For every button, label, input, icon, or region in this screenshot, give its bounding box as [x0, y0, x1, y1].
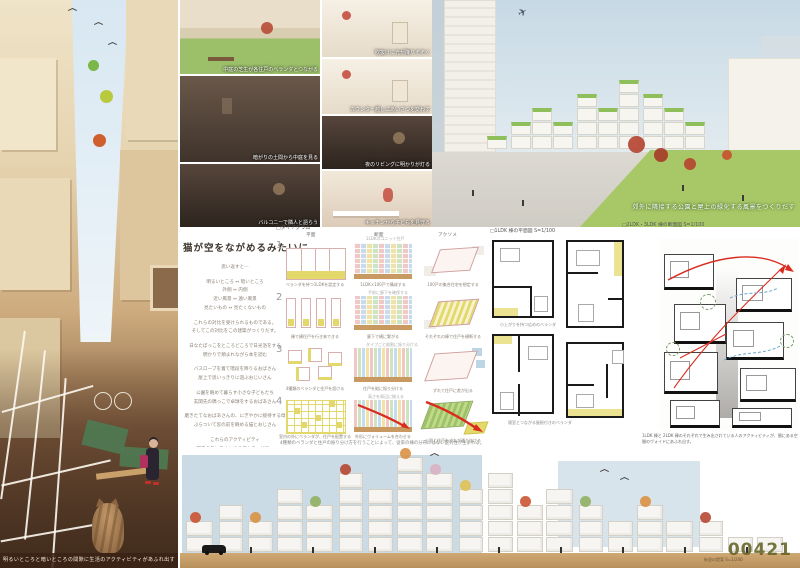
statement-line: 磨きたてなおばあさんの、にぎやかに接待する母 [183, 413, 287, 422]
hero-housing-box [553, 136, 573, 149]
elevation-box [397, 521, 423, 536]
hero-housing-box [643, 108, 663, 121]
elevation-box [277, 521, 303, 536]
elevation-box [459, 521, 483, 536]
photo-caption: 暗がりの土間から中庭を見る [253, 154, 318, 161]
bird-icon [108, 42, 117, 46]
yellow-balloon [100, 90, 113, 103]
pedestrian [472, 190, 474, 196]
statement-line: 明かりで頬まれながら本を読む [183, 352, 287, 361]
sight-arrow [354, 400, 412, 432]
diagram-caption: 廊下で横に繋がる [348, 334, 418, 340]
diagram-caption: 棟で横住戸を行き来できる [280, 334, 350, 340]
photo-caption: 夜のリビングに明かりが灯る [365, 161, 430, 168]
autumn-tree [722, 150, 732, 160]
hero-housing-box [664, 108, 684, 121]
floor-plan [566, 342, 624, 418]
photo-caption: 中庭の芝生が各住戸のベランダとつながる [223, 66, 318, 73]
hero-housing-box [664, 136, 684, 149]
elevation-box [339, 521, 363, 536]
diagram-caption: ずれて住戸に差が出る [418, 388, 488, 394]
elevation-box [517, 505, 543, 520]
window-opening [150, 265, 178, 311]
plan-annotation: 小上がりを持つ広めのベランダ [500, 322, 556, 328]
diagram-caption: 1LDK×100戸で構成する [348, 282, 418, 288]
diagram-header: □ダイアグラム [276, 224, 310, 231]
elevation-box [339, 505, 363, 520]
hero-aerial-render: ✈ 郊外に隣接する公園と屋上の緑化する風景をつくりだす [432, 0, 800, 227]
row-number: 1 [276, 240, 282, 251]
facade-block [126, 0, 178, 140]
pedestrian [742, 195, 744, 201]
statement-line: これらの対比を受けられるものである。 [183, 320, 287, 329]
elevation-box [459, 505, 483, 520]
statement-line: バスローブを着て階段を降りるおばさん [183, 366, 287, 375]
elevation-tree [430, 464, 441, 475]
bird-icon [68, 8, 77, 12]
white-building [728, 58, 800, 154]
elevation-box [426, 473, 453, 488]
elevation-box [637, 505, 663, 520]
elevation-box [637, 521, 663, 536]
airplane-icon: ✈ [515, 5, 529, 21]
bicycle-wheel [94, 392, 112, 410]
elevation-box [488, 505, 513, 520]
statement-line: 公園を眺めて暮らす小さな子どもたち [183, 390, 287, 399]
hero-housing-box [619, 122, 639, 135]
elevation-box [488, 537, 513, 552]
elevation-box [546, 489, 573, 504]
diagram-plan-1 [286, 248, 346, 280]
elevation-box [579, 521, 603, 536]
diagram-caption: 4種類のベランダと住戸を設ける [280, 386, 350, 392]
diagram-caption: ベランダを持つ1LDKを設定する [280, 282, 350, 288]
render-kitchen: キッチンから子どもを見守る [322, 171, 432, 227]
elevation-box [397, 537, 423, 552]
left-panel-caption: 明るいところと暗いところの間隙に生活のアクティビティがあふれ出す [0, 553, 178, 568]
diagram-axon-4 [422, 396, 486, 436]
render-counter: カウンター越しにあいさつを交わす [322, 59, 432, 114]
elevation-box [339, 473, 363, 488]
diagram-axon-1 [422, 240, 486, 280]
diagram-plan-2 [286, 298, 344, 330]
photo-caption: カウンター越しにあいさつを交わす [350, 106, 430, 113]
floor-plan [492, 240, 554, 318]
facade-block [0, 178, 70, 290]
elevation-box [459, 489, 483, 504]
facade-block [0, 58, 56, 150]
statement-line: 屋上で思いっきりに遊ぶおじいさん [183, 375, 287, 384]
elevation-box [397, 505, 423, 520]
diagram-section-1 [354, 243, 412, 279]
diagram-note: 1LDKのユニット住戸 [366, 236, 404, 242]
pedestrian [682, 185, 684, 191]
bird-icon [94, 22, 103, 26]
hero-housing-box [577, 136, 597, 149]
column-label-axon: アクソメ [438, 231, 457, 238]
hero-housing-box [619, 108, 639, 121]
hero-housing-box [664, 122, 684, 135]
hero-housing-box [643, 94, 663, 107]
elevation-box [546, 521, 573, 536]
render-interior-bright: 吹抜けに光が降りそそぐ [322, 0, 432, 57]
elevation-box [666, 537, 693, 552]
elevation-box [426, 505, 453, 520]
hero-housing-box [511, 122, 531, 135]
left-collage-panel: 明るいところと暗いところの間隙に生活のアクティビティがあふれ出す [0, 0, 178, 568]
diagram-caption: それぞれの棟で住戸を横断する [418, 334, 488, 340]
diagram-plan-4 [286, 400, 346, 434]
diagram-column: □ダイアグラム 平面 断面 アクソメ 1 ベランダを持つ1LDKを設定する 1L… [276, 224, 488, 448]
column-label-plan: 平面 [306, 231, 316, 238]
statement-line: 日なたぼっこをところどころで日光浴をする [183, 343, 287, 352]
elevation-skyline [180, 447, 800, 568]
elevation-box [397, 457, 423, 472]
elevation-box [666, 521, 693, 536]
diagram-caption: 住戸を縦に振り分ける [348, 386, 418, 392]
diagram-section-4 [354, 400, 412, 432]
statement-line: 思い返すと⋯ [183, 264, 287, 273]
elevation-box [368, 537, 393, 552]
elevation-box [277, 537, 303, 552]
section-caption: 1LDK 棟と 2LDK 棟のそれぞれで生み出されている人のアクティビティが、間… [642, 433, 798, 445]
autumn-tree [684, 158, 696, 170]
autumn-tree [628, 136, 645, 153]
row-number: 4 [276, 396, 282, 407]
elevation-box [517, 537, 543, 552]
hero-cluster [487, 40, 713, 152]
elevation-box [608, 521, 633, 536]
elevation-box [426, 521, 453, 536]
diagram-section-2 [354, 296, 412, 330]
elevation-box [699, 537, 723, 552]
elevation-tree [460, 480, 471, 491]
red-shoe [153, 482, 159, 485]
elevation-box [699, 521, 723, 536]
bicycle-wheel [114, 392, 132, 410]
elevation-box [368, 489, 393, 504]
pedestrian [522, 200, 524, 206]
elevation-box [219, 505, 243, 520]
statement-line: 見たいもの ↔ 見たくないもの [183, 305, 287, 314]
hero-housing-box [598, 108, 618, 121]
statement-line: 玄関先の隅っこで卓球をするおばあさん [183, 399, 287, 408]
sky-void-view [56, 0, 128, 342]
section-label: □2LDK・3LDK 棟の断面図 S=1/100 [622, 221, 704, 228]
statement-line: 外側 ↔ 内側 [183, 287, 287, 296]
elevation-tree [640, 496, 651, 507]
elevation-box [339, 537, 363, 552]
elevation-box [248, 521, 273, 536]
car-silhouette [202, 545, 226, 553]
statement-line: 近い風景 ↔ 遠い風景 [183, 296, 287, 305]
hero-housing-box [685, 122, 705, 135]
elevation-box [488, 489, 513, 504]
floor-plan [566, 240, 624, 328]
render-balcony: バルコニーで隣人と語らう [180, 164, 320, 227]
orange-balloon [93, 134, 106, 147]
hero-housing-box [619, 80, 639, 93]
elevation-box [579, 505, 603, 520]
hero-housing-box [532, 122, 552, 135]
render-night-living: 夜のリビングに明かりが灯る [322, 116, 432, 169]
section-perspective [660, 238, 798, 430]
hero-caption: 郊外に隣接する公園と屋上の緑化する風景をつくりだす [632, 202, 795, 211]
hero-housing-box [577, 122, 597, 135]
render-courtyard: 中庭の芝生が各住戸のベランダとつながる [180, 0, 320, 74]
autumn-tree [654, 148, 668, 162]
hero-housing-box [598, 122, 618, 135]
diagram-section-3 [354, 348, 412, 382]
diagram-footer: 4種類のベランダと住戸の振り分け方を行うことによって、従来の棟の分布にはない配列… [276, 440, 488, 446]
hero-housing-box [598, 136, 618, 149]
photo-grid: 中庭の芝生が各住戸のベランダとつながる 吹抜けに光が降りそそぐ 暗がりの土間から… [180, 0, 432, 227]
elevation-tree [520, 496, 531, 507]
elevation-box [546, 505, 573, 520]
elevation-box [397, 489, 423, 504]
statement-line: ぶらついて窓の前を眺める猫とおじさん [183, 422, 287, 431]
project-title: 猫が空をながめるみたいに [183, 240, 287, 254]
hero-housing-box [577, 108, 597, 121]
elevation-box [608, 537, 633, 552]
elevation-box [368, 521, 393, 536]
diagram-axon-3 [422, 344, 486, 386]
hero-housing-box [553, 122, 573, 135]
elevation-box [488, 521, 513, 536]
hero-housing-box [619, 94, 639, 107]
elevation-box [339, 489, 363, 504]
elevation-tree [580, 496, 591, 507]
elevation-tree [190, 512, 201, 523]
elevation-tree [250, 512, 261, 523]
statement-line: そしてこの対比をこの建築がつくりだす。 [183, 328, 287, 337]
hero-housing-box [532, 136, 552, 149]
hero-housing-box [487, 136, 507, 149]
elevation-box [306, 537, 333, 552]
elevation-panel: 街並の提案 S=1/200 [180, 447, 800, 568]
cat-figure [92, 503, 124, 553]
hero-housing-box [532, 108, 552, 121]
elevation-tree [340, 464, 351, 475]
diagram-axon-2 [422, 292, 486, 332]
elevation-box [219, 521, 243, 536]
elevation-box [368, 505, 393, 520]
competition-board: 明るいところと暗いところの間隙に生活のアクティビティがあふれ出す 中庭の芝生が各… [0, 0, 800, 568]
row-number: 3 [276, 344, 282, 355]
elevation-box [397, 473, 423, 488]
elevation-box [277, 489, 303, 504]
elevation-box [637, 537, 663, 552]
flow-arrow [422, 396, 486, 436]
statement-line: これらのアクティビティ [183, 437, 287, 446]
hero-housing-box [643, 122, 663, 135]
elevation-box [488, 473, 513, 488]
elevation-tree [400, 448, 411, 459]
row-number: 2 [276, 292, 282, 303]
hero-housing-box [577, 94, 597, 107]
elevation-box [426, 537, 453, 552]
elevation-tree [700, 512, 711, 523]
render-interior-dark: 暗がりの土間から中庭を見る [180, 76, 320, 162]
plan-annotation: 寝室とつながる屋根付きのベランダ [508, 420, 572, 426]
elevation-box [517, 521, 543, 536]
hero-housing-box [685, 136, 705, 149]
girl-figure-head [149, 439, 158, 448]
red-shoe [145, 481, 151, 484]
statement-line: 明るいところ ↔ 暗いところ [183, 279, 287, 288]
board-number: 00421 [728, 540, 792, 560]
elevation-box [579, 537, 603, 552]
plans-label: □1LDK 棟の平面図 S=1/100 [490, 227, 555, 234]
elevation-box [186, 521, 213, 536]
elevation-tree [310, 496, 321, 507]
diagram-plan-3 [286, 348, 344, 382]
elevation-box [306, 521, 333, 536]
elevation-box [426, 489, 453, 504]
diagram-caption: 100戸の集合住宅を想定する [418, 282, 488, 288]
elevation-box [277, 505, 303, 520]
elevation-box [306, 505, 333, 520]
green-balloon [88, 60, 99, 71]
floor-plan [492, 334, 554, 414]
photo-caption: 吹抜けに光が降りそそぐ [375, 49, 430, 56]
sightline-arrows [660, 238, 798, 430]
hero-housing-box [511, 136, 531, 149]
elevation-box [459, 537, 483, 552]
girl-backpack [140, 455, 148, 468]
